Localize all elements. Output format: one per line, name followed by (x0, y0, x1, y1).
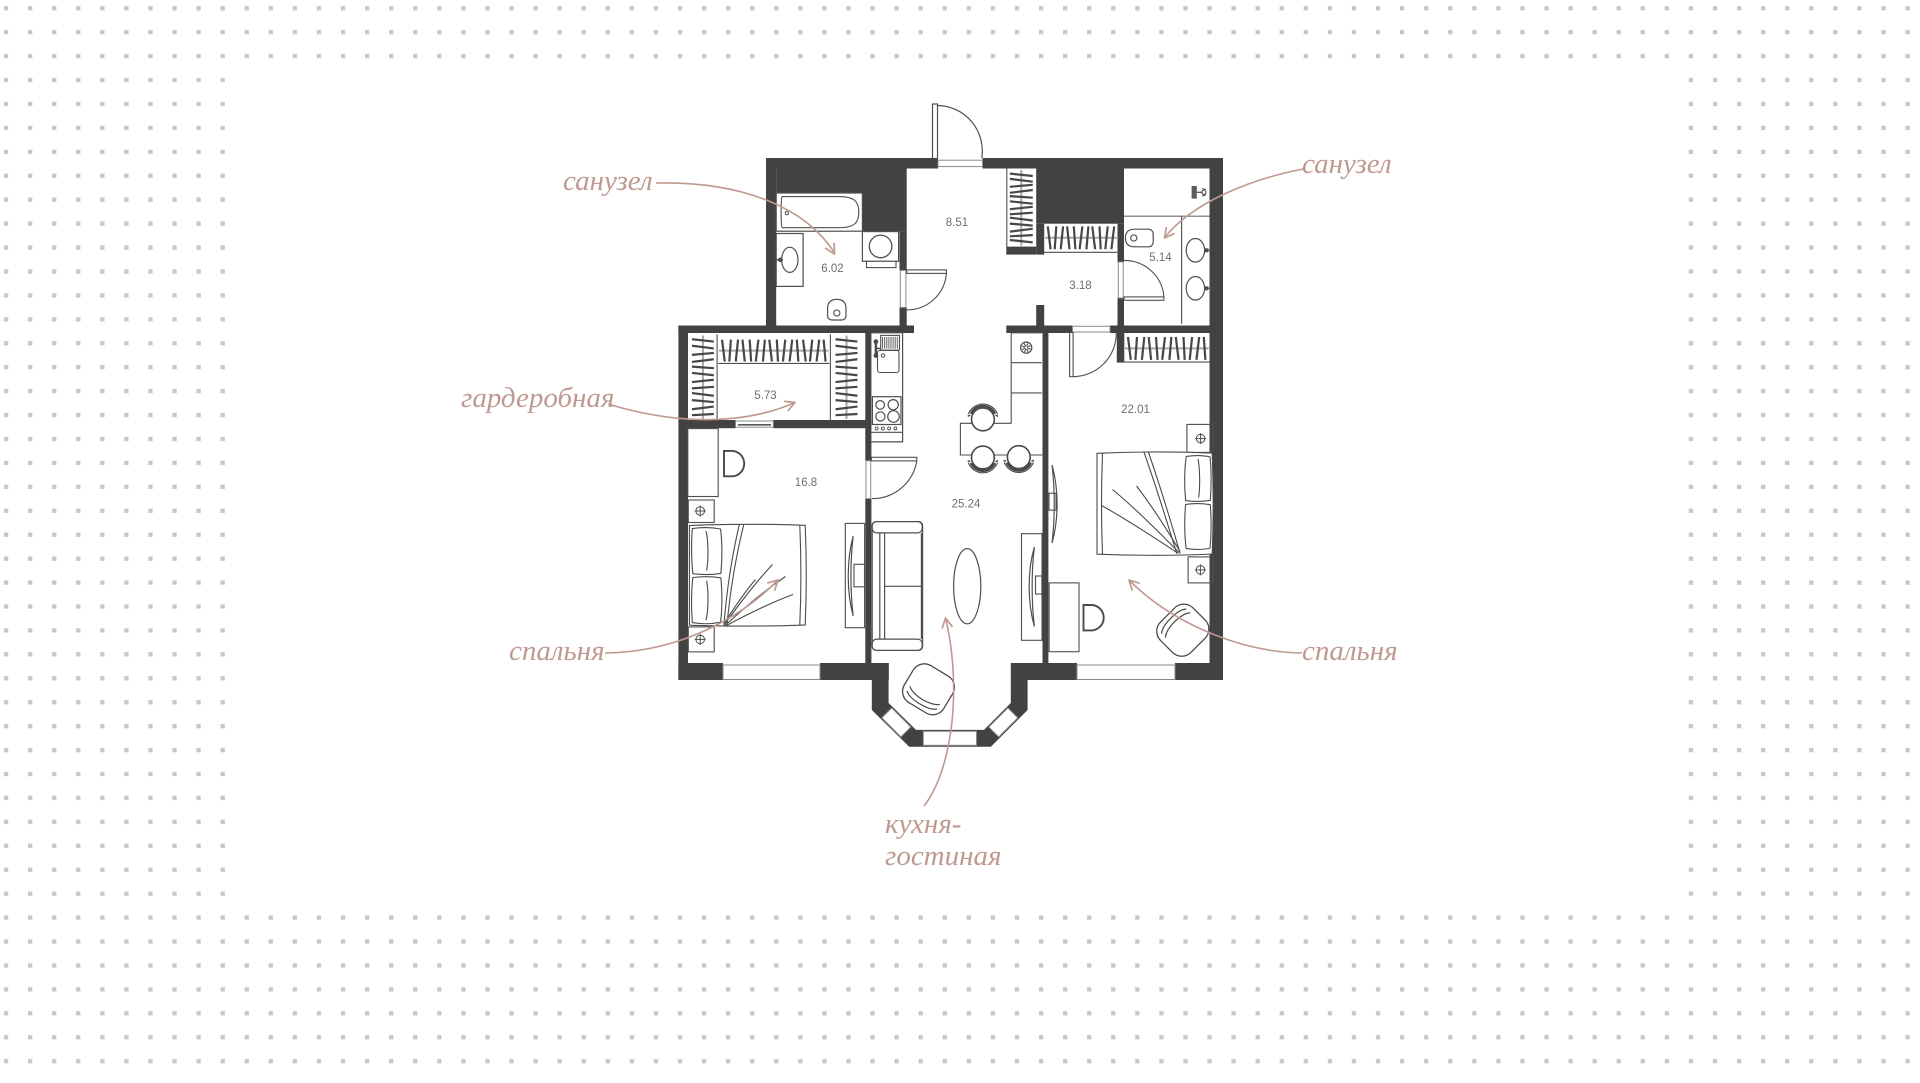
svg-text:спальня: спальня (509, 635, 605, 667)
svg-text:спальня: спальня (1302, 635, 1398, 667)
svg-text:5.14: 5.14 (1149, 252, 1172, 264)
svg-text:3.18: 3.18 (1069, 280, 1091, 292)
svg-text:санузел: санузел (1302, 148, 1392, 180)
svg-text:санузел: санузел (563, 165, 653, 197)
svg-text:22.01: 22.01 (1121, 404, 1150, 416)
svg-text:гардеробная: гардеробная (461, 382, 614, 414)
svg-text:кухня-: кухня- (885, 808, 961, 840)
svg-text:6.02: 6.02 (821, 263, 843, 275)
svg-text:8.51: 8.51 (946, 217, 968, 229)
svg-text:5.73: 5.73 (754, 390, 776, 402)
svg-text:гостиная: гостиная (885, 840, 1002, 872)
svg-text:16.8: 16.8 (795, 477, 817, 489)
svg-text:25.24: 25.24 (952, 499, 981, 511)
